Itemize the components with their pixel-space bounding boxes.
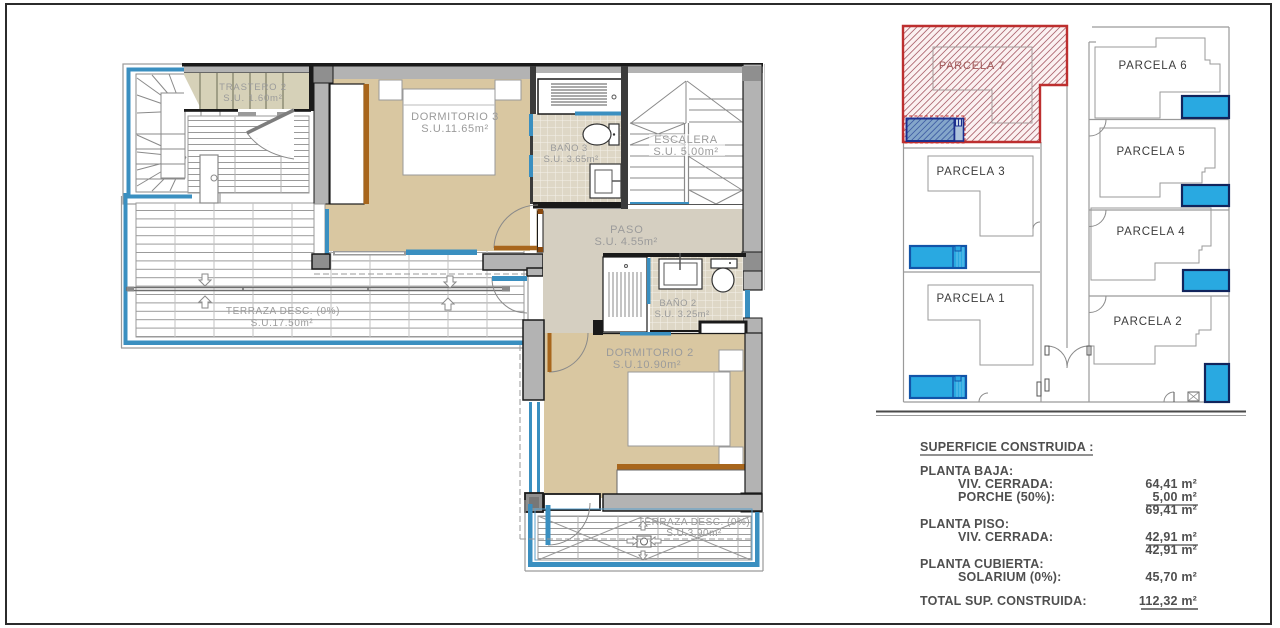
svg-text:PARCELA 7: PARCELA 7	[939, 60, 1005, 72]
svg-text:64,41 m²: 64,41 m²	[1145, 477, 1197, 491]
svg-text:112,32 m²: 112,32 m²	[1139, 594, 1197, 608]
svg-text:PASO: PASO	[610, 224, 644, 236]
svg-text:69,41 m²: 69,41 m²	[1145, 503, 1197, 517]
svg-text:45,70 m²: 45,70 m²	[1145, 570, 1197, 584]
svg-text:TERRAZA DESC. (0%): TERRAZA DESC. (0%)	[638, 517, 750, 528]
svg-text:TOTAL SUP. CONSTRUIDA:: TOTAL SUP. CONSTRUIDA:	[920, 594, 1087, 608]
svg-text:PLANTA CUBIERTA:: PLANTA CUBIERTA:	[920, 557, 1044, 571]
svg-text:5,00 m²: 5,00 m²	[1153, 490, 1197, 504]
svg-text:BAÑO 3: BAÑO 3	[550, 143, 587, 154]
svg-text:S.U.10.90m²: S.U.10.90m²	[613, 359, 681, 371]
svg-text:PARCELA 6: PARCELA 6	[1119, 60, 1188, 72]
svg-text:S.U.3.90m²: S.U.3.90m²	[666, 528, 722, 539]
svg-text:42,91 m²: 42,91 m²	[1145, 530, 1197, 544]
svg-text:DORMITORIO 2: DORMITORIO 2	[606, 347, 694, 359]
svg-text:PARCELA 3: PARCELA 3	[937, 166, 1006, 178]
svg-text:SOLARIUM (0%):: SOLARIUM (0%):	[958, 570, 1062, 584]
svg-text:PARCELA 5: PARCELA 5	[1117, 146, 1186, 158]
svg-text:42,91 m²: 42,91 m²	[1145, 543, 1197, 557]
svg-text:S.U. 5.00m²: S.U. 5.00m²	[653, 146, 718, 158]
svg-text:PLANTA BAJA:: PLANTA BAJA:	[920, 464, 1013, 478]
svg-text:SUPERFICIE CONSTRUIDA :: SUPERFICIE CONSTRUIDA :	[920, 440, 1094, 454]
svg-text:PARCELA 2: PARCELA 2	[1114, 316, 1183, 328]
svg-text:S.U.11.65m²: S.U.11.65m²	[421, 123, 489, 135]
svg-text:PORCHE (50%):: PORCHE (50%):	[958, 490, 1055, 504]
svg-text:S.U. 3.25m²: S.U. 3.25m²	[654, 309, 709, 320]
svg-text:S.U. 1.60m²: S.U. 1.60m²	[223, 93, 282, 104]
svg-text:VIV. CERRADA:: VIV. CERRADA:	[958, 477, 1053, 491]
svg-text:TERRAZA DESC. (0%): TERRAZA DESC. (0%)	[226, 306, 340, 317]
svg-text:S.U. 3.65m²: S.U. 3.65m²	[543, 154, 598, 165]
svg-text:TRASTERO 2: TRASTERO 2	[219, 82, 287, 93]
svg-text:PARCELA 1: PARCELA 1	[937, 293, 1006, 305]
svg-text:VIV. CERRADA:: VIV. CERRADA:	[958, 530, 1053, 544]
svg-text:ESCALERA: ESCALERA	[654, 134, 718, 146]
svg-text:DORMITORIO 3: DORMITORIO 3	[411, 111, 499, 123]
svg-text:S.U. 4.55m²: S.U. 4.55m²	[594, 236, 657, 248]
svg-text:S.U.17.50m²: S.U.17.50m²	[251, 318, 314, 329]
svg-text:BAÑO 2: BAÑO 2	[659, 298, 696, 309]
svg-text:PARCELA 4: PARCELA 4	[1117, 226, 1186, 238]
svg-text:PLANTA PISO:: PLANTA PISO:	[920, 517, 1009, 531]
